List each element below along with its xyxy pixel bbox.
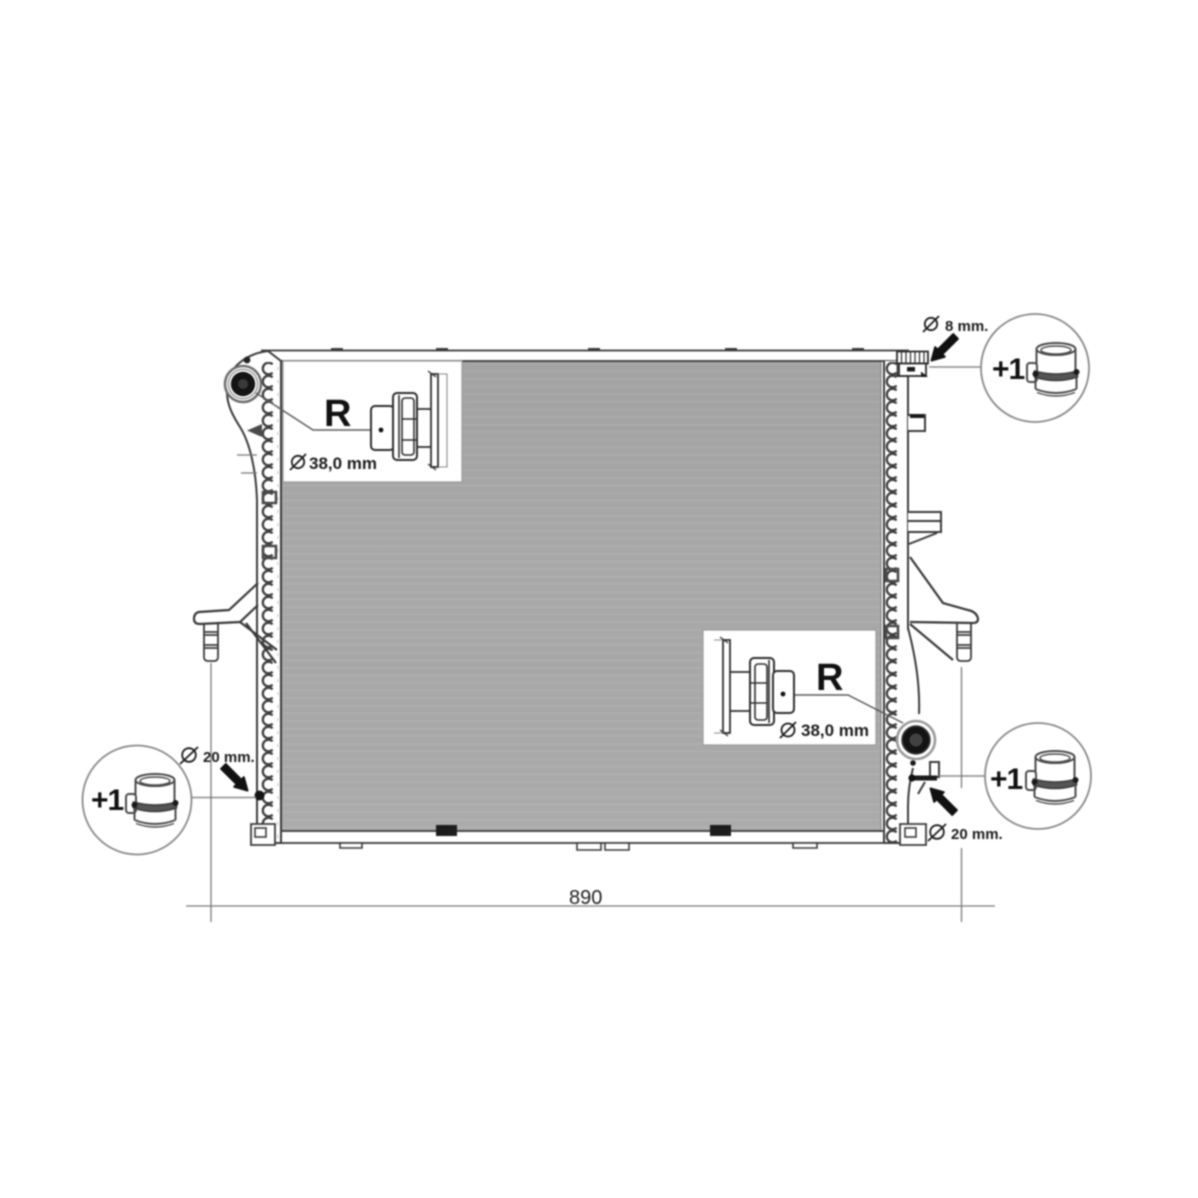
- svg-text:+1: +1: [990, 763, 1023, 796]
- svg-text:38,0 mm: 38,0 mm: [309, 454, 377, 473]
- svg-text:R: R: [816, 657, 843, 699]
- svg-text:+1: +1: [992, 353, 1025, 386]
- svg-text:8 mm.: 8 mm.: [945, 318, 988, 335]
- svg-text:+1: +1: [91, 784, 124, 817]
- svg-text:R: R: [324, 393, 351, 435]
- svg-text:890: 890: [569, 887, 602, 909]
- svg-text:38,0 mm: 38,0 mm: [801, 721, 869, 740]
- svg-text:20 mm.: 20 mm.: [951, 826, 1003, 843]
